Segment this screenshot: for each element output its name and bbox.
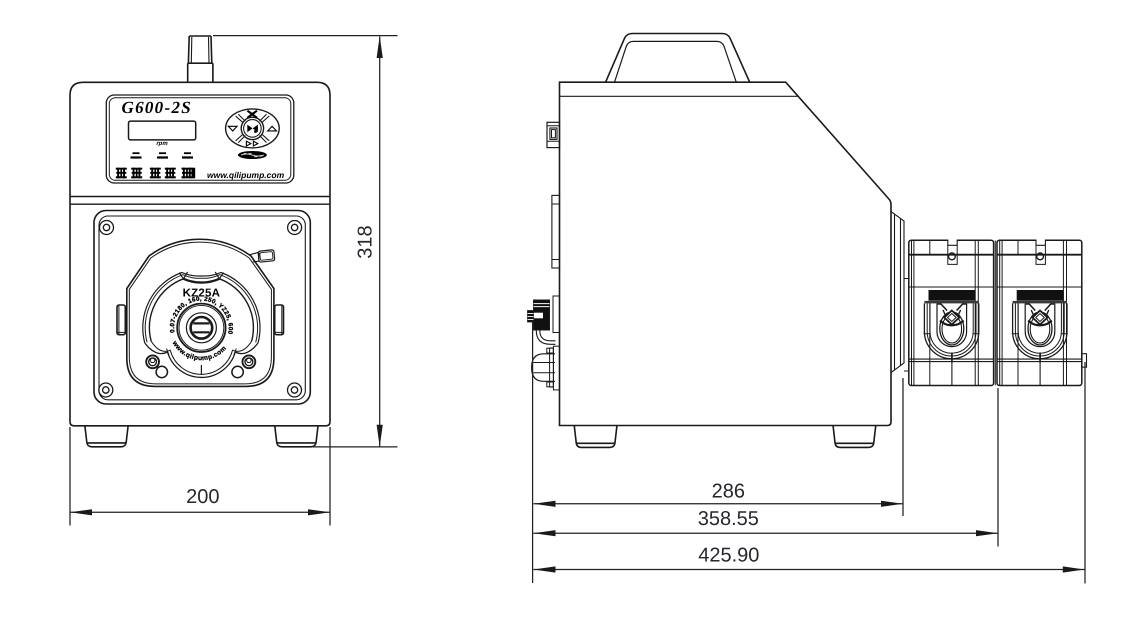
svg-text:www.qilipump.com: www.qilipump.com: [207, 170, 285, 180]
svg-text:425.90: 425.90: [698, 545, 759, 567]
svg-text:318: 318: [355, 225, 377, 258]
svg-text:rpm: rpm: [156, 141, 168, 147]
svg-text:286: 286: [712, 480, 745, 502]
svg-text:200: 200: [186, 486, 219, 508]
svg-text:G600-2S: G600-2S: [122, 98, 193, 117]
svg-text:358.55: 358.55: [698, 508, 759, 530]
